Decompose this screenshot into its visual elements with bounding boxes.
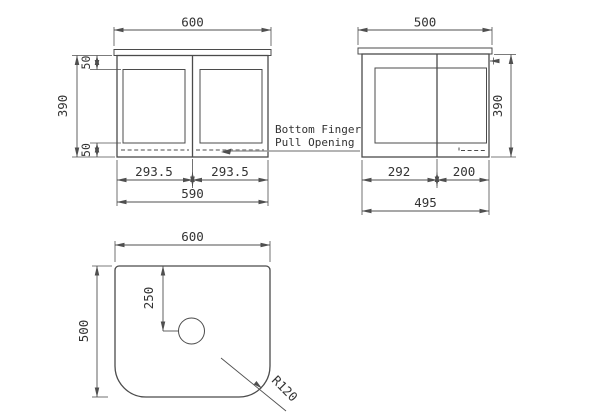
plan-hole-offset-label: 250 <box>141 287 156 310</box>
front-right-door-label: 293.5 <box>211 164 249 179</box>
front-top-width-label: 600 <box>181 15 204 30</box>
side-view: 500 390 292 200 495 <box>358 15 516 216</box>
side-countertop <box>358 48 492 54</box>
side-height-label: 390 <box>490 95 505 118</box>
leader-arrow-icon <box>221 149 232 155</box>
radius-arrow-icon <box>254 381 262 389</box>
plan-depth-label: 500 <box>76 320 91 343</box>
front-cabinet-width-label: 590 <box>181 186 204 201</box>
plan-corner-radius-label: R120 <box>269 373 301 405</box>
side-right-door-label: 200 <box>453 164 476 179</box>
vanity-drawing: 600 390 50 50 293.5 293.5 590 Bottom Fin… <box>0 0 600 416</box>
side-top-width-label: 500 <box>414 15 437 30</box>
front-view: 600 390 50 50 293.5 293.5 590 <box>55 15 271 207</box>
side-left-door-label: 292 <box>388 164 411 179</box>
finger-pull-note-line1: Bottom Finger <box>275 123 361 136</box>
finger-pull-note-line2: Pull Opening <box>275 136 354 149</box>
front-bottom-rail-label: 50 <box>79 143 93 157</box>
finger-pull-annotation: Bottom Finger Pull Opening <box>221 123 361 155</box>
technical-drawing-canvas: 600 390 50 50 293.5 293.5 590 Bottom Fin… <box>0 0 600 416</box>
front-right-door-panel <box>200 70 262 144</box>
plan-view: 600 500 250 R120 <box>76 229 301 411</box>
plan-width-label: 600 <box>181 229 204 244</box>
front-left-door-label: 293.5 <box>135 164 173 179</box>
front-left-door-panel <box>123 70 185 144</box>
front-countertop <box>114 50 271 56</box>
side-cabinet-width-label: 495 <box>414 195 437 210</box>
plan-benchtop-outline <box>115 266 270 397</box>
front-height-label: 390 <box>55 95 70 118</box>
plan-basin-hole <box>179 318 205 344</box>
front-top-rail-label: 50 <box>79 56 93 70</box>
side-door-panel <box>375 68 487 143</box>
side-cabinet-body <box>362 54 489 157</box>
